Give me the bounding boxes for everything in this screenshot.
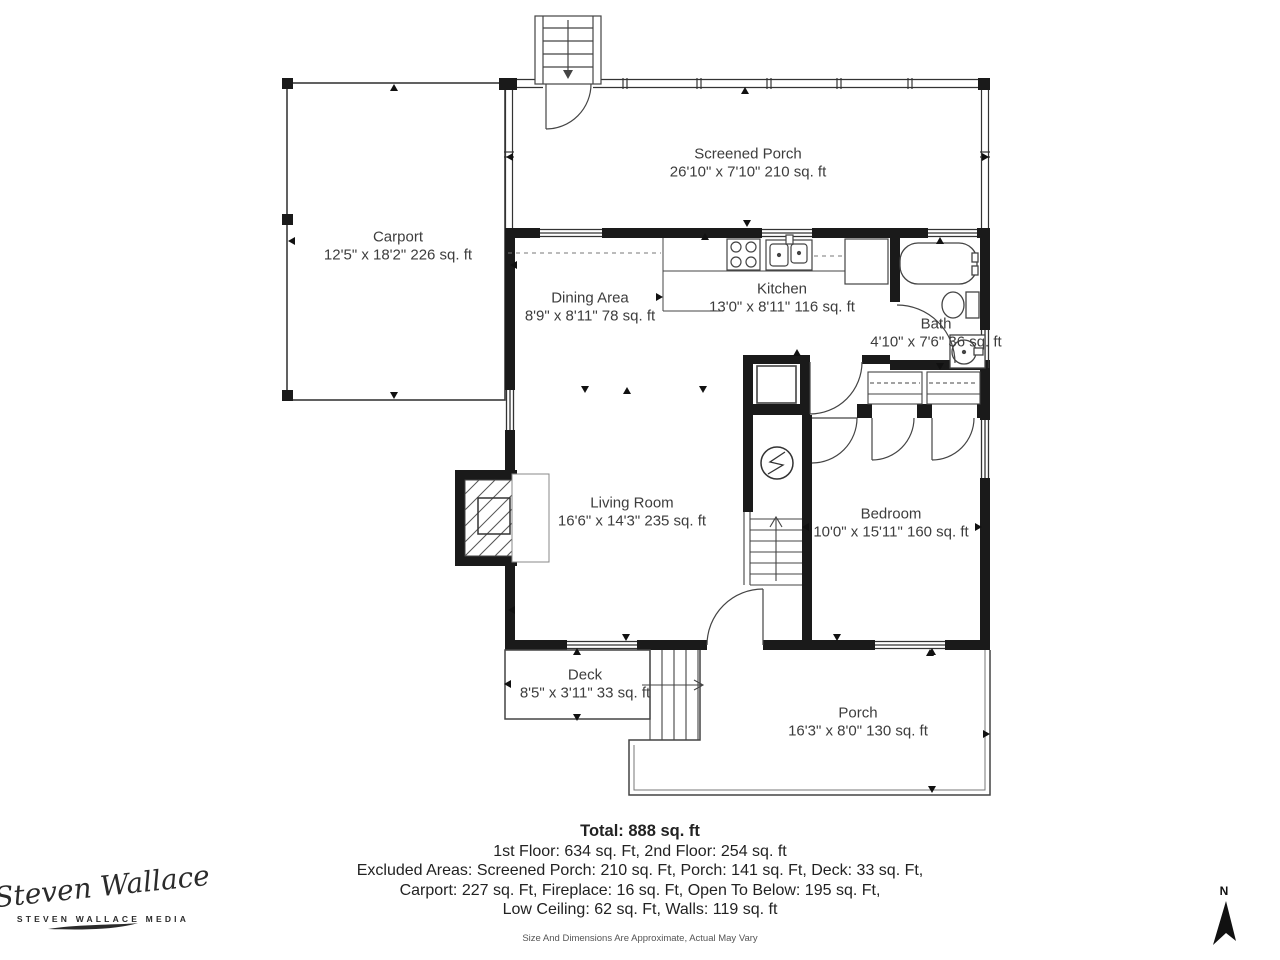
steps-arrow-icon: [694, 680, 703, 690]
deck-steps: [642, 650, 703, 740]
door-kitchen-hall: [810, 362, 862, 414]
exterior-stairs-top: [535, 16, 601, 84]
room-dims: 10'0" x 15'11" 160 sq. ft: [813, 523, 968, 541]
hearth: [512, 474, 549, 562]
room-dims: 12'5" x 18'2" 226 sq. ft: [324, 246, 472, 264]
floor-plan-page: Steven Wallace STEVEN WALLACE MEDIA Scre…: [0, 0, 1280, 960]
water-heater: [761, 447, 793, 479]
room-dims: 8'9" x 8'11" 78 sq. ft: [525, 307, 655, 325]
room-name: Living Room: [558, 495, 706, 513]
room-label-bedroom: Bedroom 10'0" x 15'11" 160 sq. ft: [813, 506, 968, 541]
room-dims: 13'0" x 8'11" 116 sq. ft: [709, 298, 855, 316]
summary-line: Low Ceiling: 62 sq. Ft, Walls: 119 sq. f…: [0, 900, 1280, 920]
window-dining-left: [507, 390, 514, 430]
room-label-screened-porch: Screened Porch 26'10" x 7'10" 210 sq. ft: [670, 146, 826, 181]
interior-stairs: [744, 512, 802, 585]
room-label-porch: Porch 16'3" x 8'0" 130 sq. ft: [788, 705, 928, 740]
room-name: Kitchen: [709, 281, 855, 299]
door-porch-entry: [546, 84, 591, 129]
window-bath-top: [928, 230, 977, 237]
summary-line: Excluded Areas: Screened Porch: 210 sq. …: [0, 861, 1280, 881]
fireplace-hatch: [465, 480, 512, 556]
closets: [757, 366, 980, 404]
area-summary: Total: 888 sq. ft 1st Floor: 634 sq. Ft,…: [0, 822, 1280, 948]
porch-corner-posts: [505, 78, 990, 90]
room-label-dining: Dining Area 8'9" x 8'11" 78 sq. ft: [525, 290, 655, 325]
window-kitchen-sink: [762, 230, 812, 237]
north-label: N: [1212, 884, 1236, 898]
door-bedroom: [812, 418, 857, 463]
room-dims: 16'6" x 14'3" 235 sq. ft: [558, 512, 706, 530]
room-dims: 16'3" x 8'0" 130 sq. ft: [788, 722, 928, 740]
stairs-up-arrow-icon: [770, 517, 782, 527]
room-name: Carport: [324, 229, 472, 247]
room-name: Bedroom: [813, 506, 968, 524]
firebox: [478, 498, 510, 534]
door-living-exterior: [707, 589, 763, 645]
room-label-kitchen: Kitchen 13'0" x 8'11" 116 sq. ft: [709, 281, 855, 316]
window-living-bottom: [567, 642, 637, 649]
porch-mullions: [623, 78, 912, 89]
floor-plan-drawing: Steven Wallace STEVEN WALLACE MEDIA: [0, 0, 1280, 960]
closet-b: [927, 372, 980, 404]
fireplace: [455, 470, 549, 566]
tub-faucet: [972, 253, 978, 262]
porch-right-screen: [980, 90, 990, 228]
room-name: Dining Area: [525, 290, 655, 308]
refrigerator: [845, 239, 888, 284]
room-label-carport: Carport 12'5" x 18'2" 226 sq. ft: [324, 229, 472, 264]
bathtub: [900, 243, 977, 284]
room-name: Porch: [788, 705, 928, 723]
closet-a: [868, 372, 922, 404]
room-label-deck: Deck 8'5" x 3'11" 33 sq. ft: [520, 667, 650, 702]
disclaimer-text: Size And Dimensions Are Approximate, Act…: [0, 929, 1280, 949]
utility-cabinet: [757, 366, 796, 403]
room-name: Screened Porch: [670, 146, 826, 164]
window-bedroom-bottom: [875, 642, 945, 649]
stairs-down-arrow-icon: [563, 70, 573, 79]
summary-line: 1st Floor: 634 sq. Ft, 2nd Floor: 254 sq…: [0, 842, 1280, 862]
summary-line: Carport: 227 sq. Ft, Fireplace: 16 sq. F…: [0, 881, 1280, 901]
window-dining-top: [540, 230, 602, 237]
room-label-bath: Bath 4'10" x 7'6" 36 sq. ft: [870, 316, 1001, 351]
room-label-living: Living Room 16'6" x 14'3" 235 sq. ft: [558, 495, 706, 530]
room-dims: 26'10" x 7'10" 210 sq. ft: [670, 163, 826, 181]
toilet: [942, 292, 979, 318]
door-closet-b: [932, 418, 974, 460]
porch-left-screen: [504, 90, 514, 228]
room-name: Bath: [870, 316, 1001, 334]
total-area: Total: 888 sq. ft: [0, 822, 1280, 842]
room-name: Deck: [520, 667, 650, 685]
room-dims: 4'10" x 7'6" 36 sq. ft: [870, 333, 1001, 351]
kitchen-sink: [766, 235, 812, 270]
porch-top-screen: [505, 78, 990, 89]
stove: [727, 239, 760, 270]
door-closet-a: [872, 418, 914, 460]
room-dims: 8'5" x 3'11" 33 sq. ft: [520, 684, 650, 702]
window-bedroom-right: [982, 420, 989, 478]
water-heater-zigzag-icon: [768, 452, 785, 474]
